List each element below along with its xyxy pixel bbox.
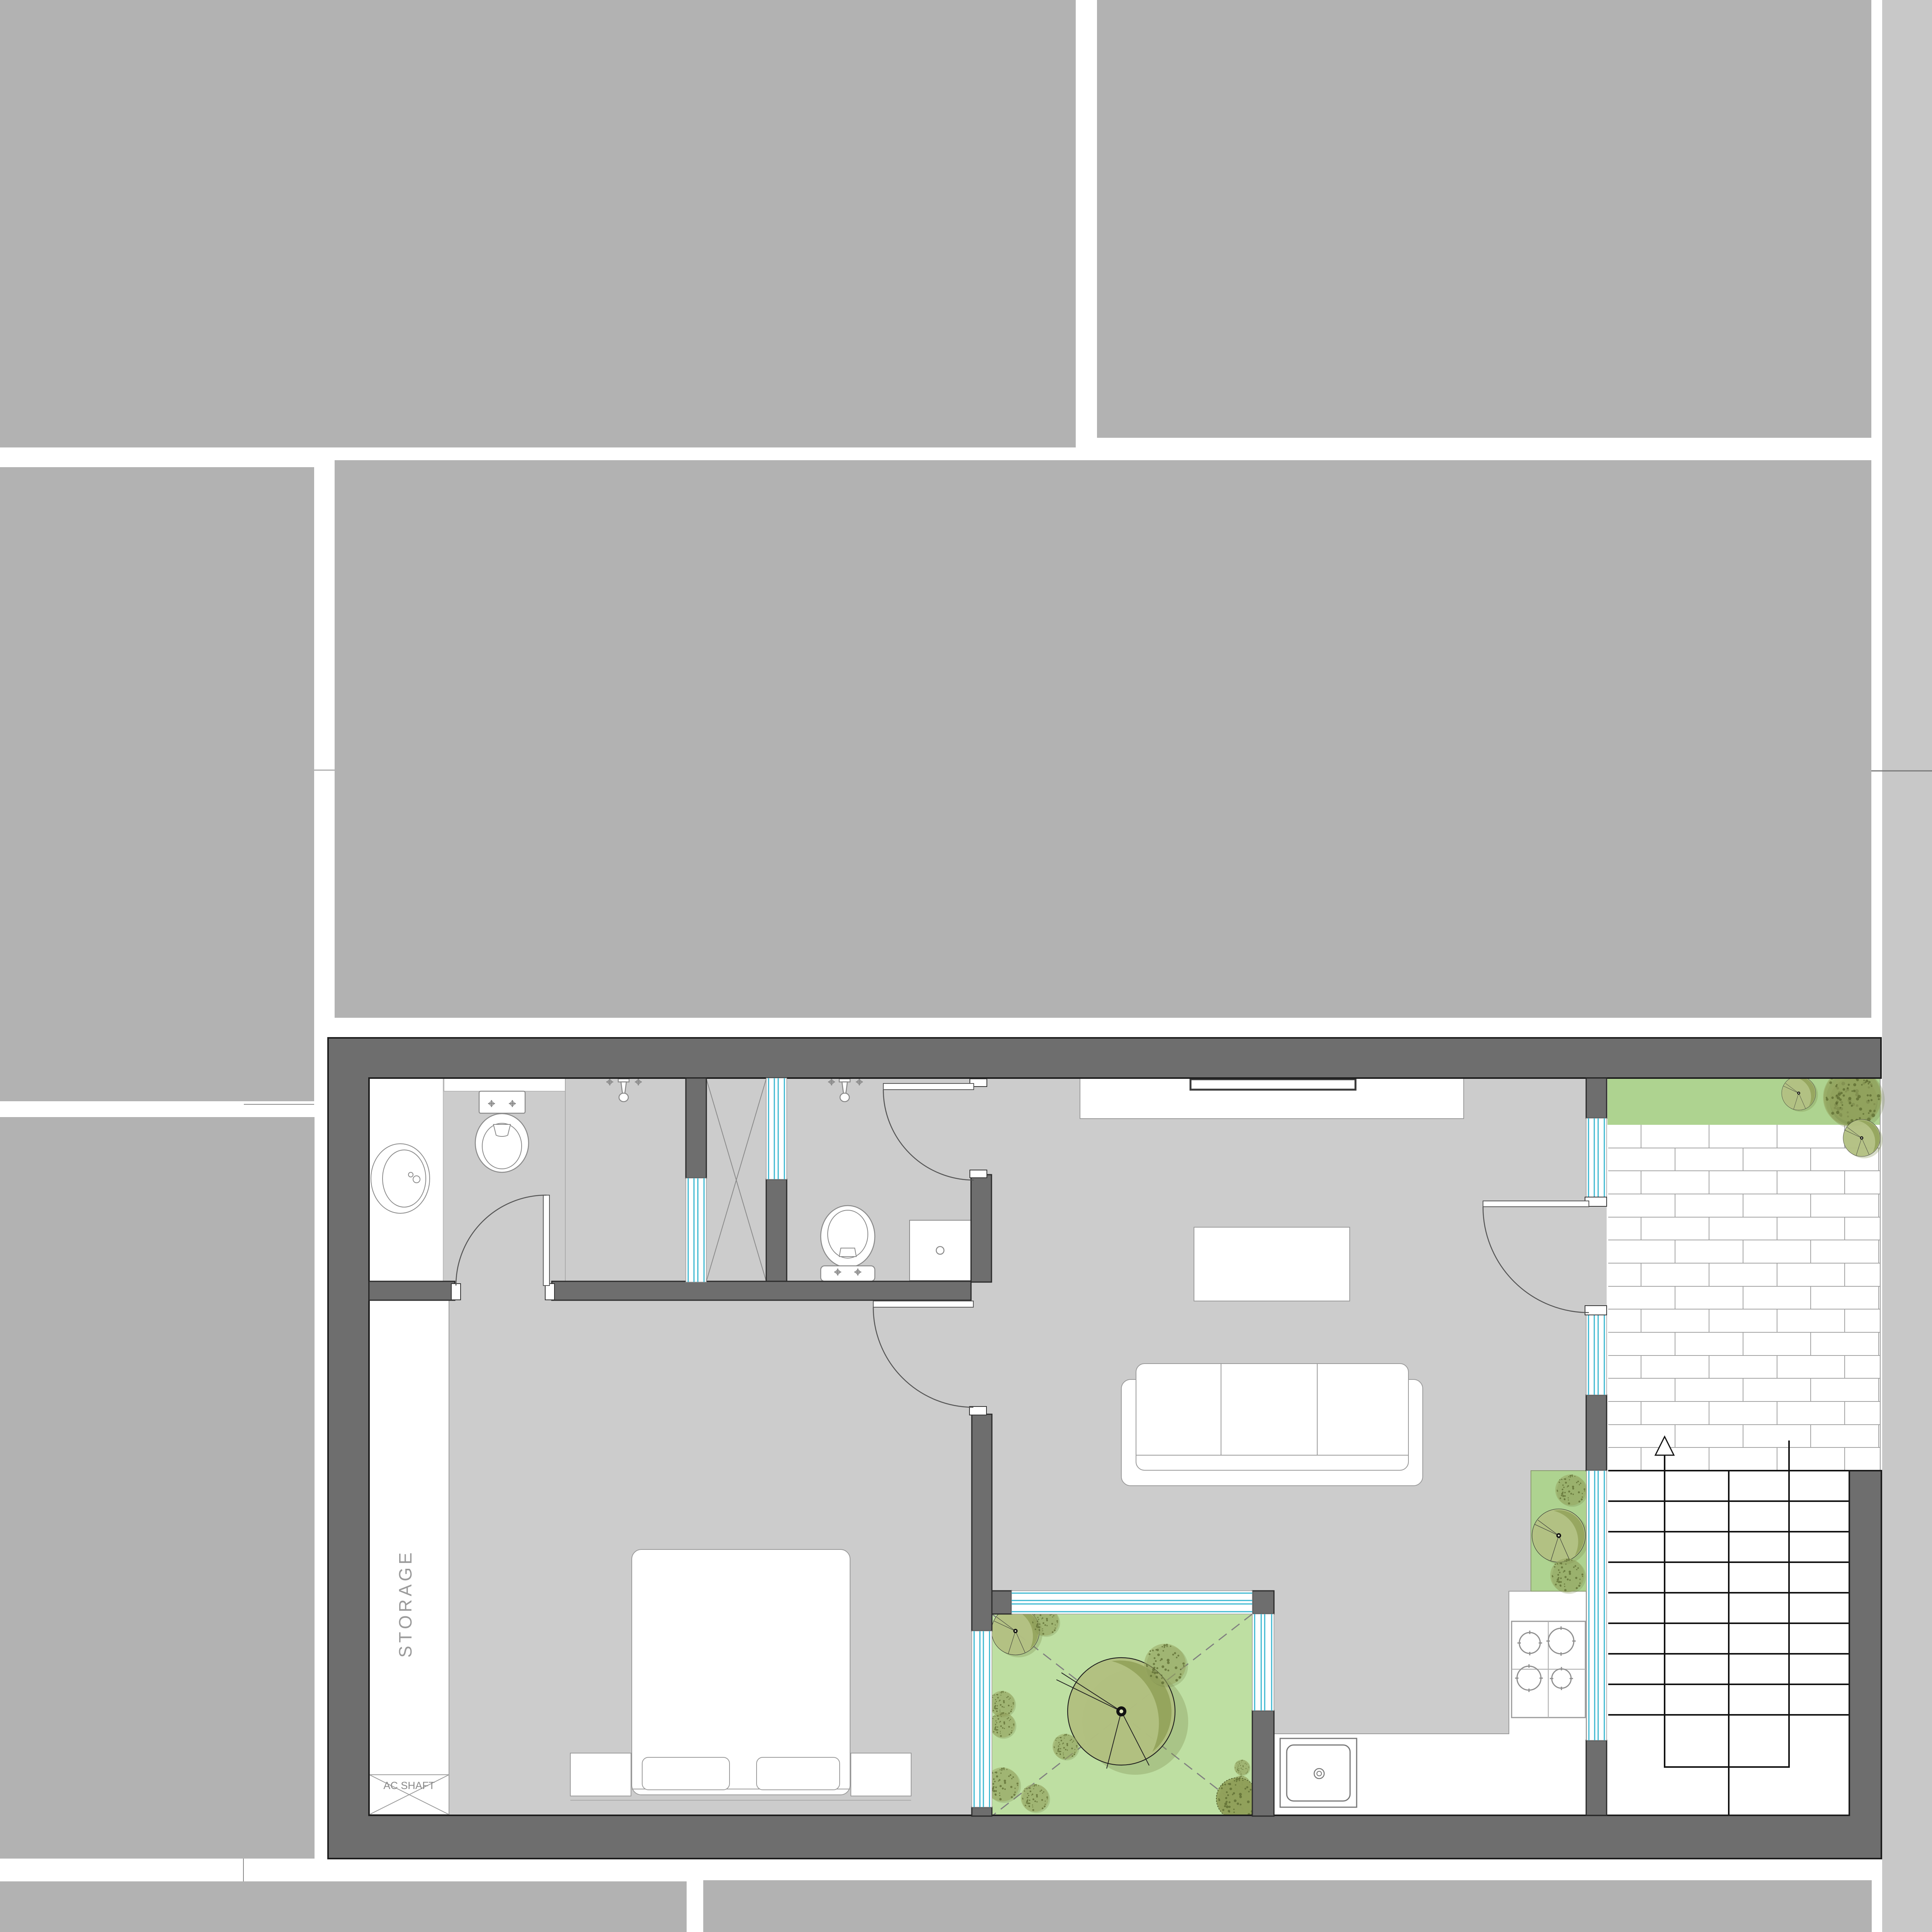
svg-text:STORAGE: STORAGE: [395, 1549, 415, 1658]
svg-text:AC SHAFT: AC SHAFT: [383, 1780, 435, 1791]
